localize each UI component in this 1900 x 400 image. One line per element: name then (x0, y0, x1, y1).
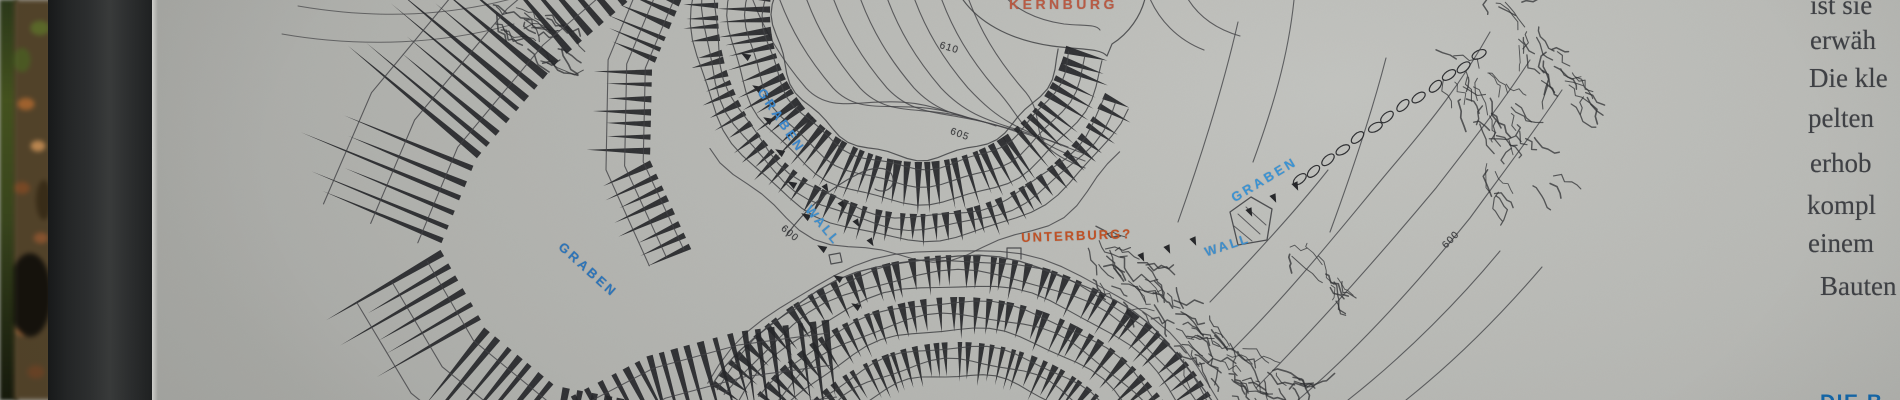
text-column-line: pelten (1808, 104, 1874, 134)
text-column-line: erhob (1810, 149, 1871, 179)
text-column-line: einem (1808, 229, 1874, 259)
text-column-line: Bauten (1820, 272, 1896, 302)
map-label-unterburg: UNTERBURG? (1021, 227, 1132, 244)
text-column-line: erwäh (1810, 26, 1876, 56)
map-label-kernburg: KERNBURG (1009, 0, 1118, 11)
map-drawing (0, 0, 1900, 400)
text-column-line: Die kle (1809, 64, 1888, 94)
photo-grain (152, 0, 1900, 400)
photo-scene: KERNBURGUNTERBURG?GRABENGRABENGRABENWALL… (0, 0, 1900, 400)
text-column-line: kompl (1807, 191, 1876, 221)
text-column-line: ist sie (1810, 0, 1872, 21)
blue-heading-partial: DIE B (1820, 391, 1884, 400)
